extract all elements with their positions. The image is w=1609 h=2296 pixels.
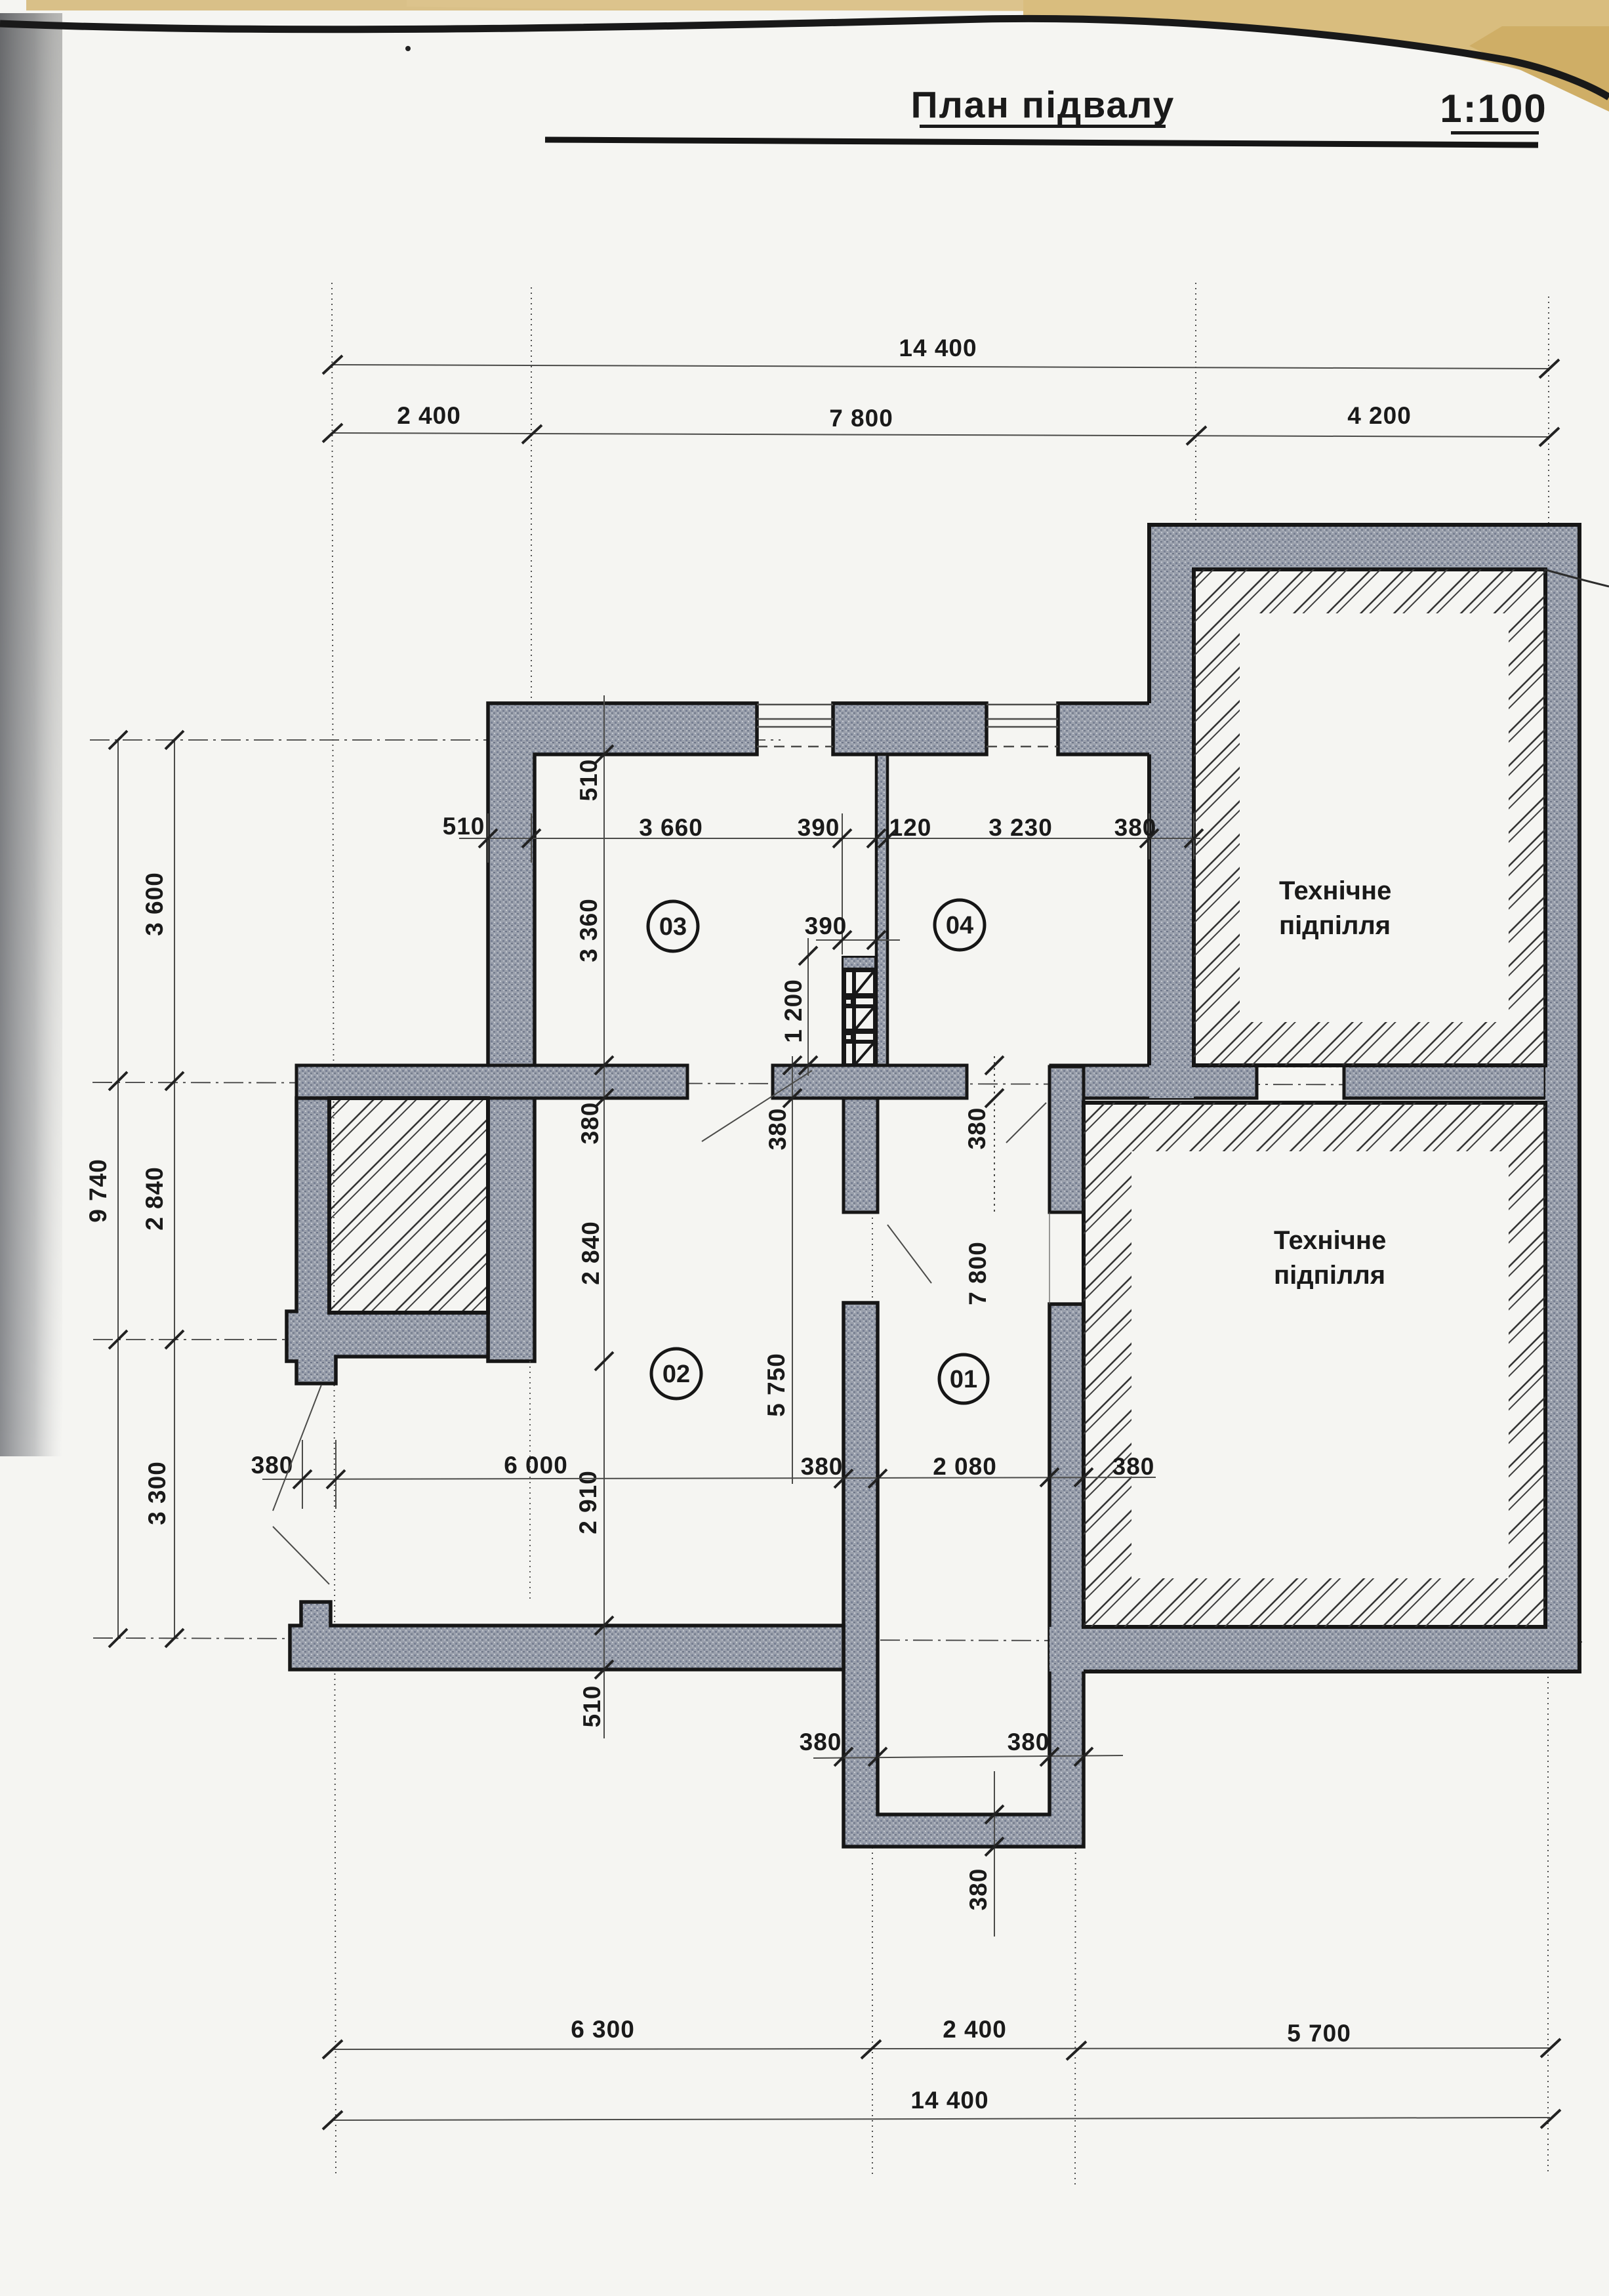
svg-text:120: 120 <box>889 814 932 841</box>
svg-text:510: 510 <box>575 759 602 802</box>
svg-text:3 230: 3 230 <box>988 814 1053 841</box>
svg-text:390: 390 <box>805 912 847 939</box>
svg-text:510: 510 <box>443 813 485 840</box>
svg-text:02: 02 <box>662 1361 690 1388</box>
svg-text:3 660: 3 660 <box>639 814 703 841</box>
svg-text:380: 380 <box>1112 1453 1155 1480</box>
svg-text:390: 390 <box>798 814 840 841</box>
svg-text:1:100: 1:100 <box>1440 87 1547 131</box>
svg-text:2 080: 2 080 <box>933 1453 997 1480</box>
svg-text:4 200: 4 200 <box>1347 402 1412 429</box>
svg-text:380: 380 <box>800 1729 842 1755</box>
svg-text:2 840: 2 840 <box>141 1166 168 1231</box>
svg-text:380: 380 <box>1114 814 1157 841</box>
svg-text:2 400: 2 400 <box>943 2016 1007 2043</box>
svg-text:510: 510 <box>579 1685 605 1728</box>
svg-text:380: 380 <box>1008 1729 1050 1755</box>
svg-text:380: 380 <box>577 1102 603 1145</box>
svg-text:7 800: 7 800 <box>964 1241 991 1305</box>
svg-text:План підвалу: План підвалу <box>911 84 1175 126</box>
svg-text:04: 04 <box>946 912 973 939</box>
svg-text:3 360: 3 360 <box>575 898 602 962</box>
svg-text:380: 380 <box>965 1868 992 1911</box>
svg-text:6 300: 6 300 <box>571 2016 635 2043</box>
svg-text:03: 03 <box>659 913 687 941</box>
svg-text:7 800: 7 800 <box>829 405 893 432</box>
svg-text:5 750: 5 750 <box>763 1353 790 1417</box>
svg-text:14 400: 14 400 <box>910 2087 988 2114</box>
svg-text:380: 380 <box>964 1107 990 1150</box>
svg-text:5 700: 5 700 <box>1287 2020 1351 2047</box>
svg-text:3 600: 3 600 <box>141 872 168 936</box>
svg-text:Технічне: Технічне <box>1279 876 1391 905</box>
svg-text:2 400: 2 400 <box>397 402 461 429</box>
svg-text:380: 380 <box>764 1108 791 1151</box>
svg-text:01: 01 <box>950 1366 977 1393</box>
svg-text:2 910: 2 910 <box>575 1470 601 1534</box>
svg-text:6 000: 6 000 <box>504 1452 568 1479</box>
svg-text:підпілля: підпілля <box>1274 1261 1385 1290</box>
svg-text:14 400: 14 400 <box>899 335 977 361</box>
svg-text:380: 380 <box>801 1453 844 1480</box>
svg-text:9 740: 9 740 <box>85 1158 112 1223</box>
svg-text:2 840: 2 840 <box>577 1221 604 1285</box>
svg-text:Технічне: Технічне <box>1274 1226 1386 1255</box>
svg-text:3 300: 3 300 <box>144 1461 171 1525</box>
svg-text:підпілля: підпілля <box>1279 911 1391 940</box>
svg-text:1 200: 1 200 <box>780 979 807 1043</box>
